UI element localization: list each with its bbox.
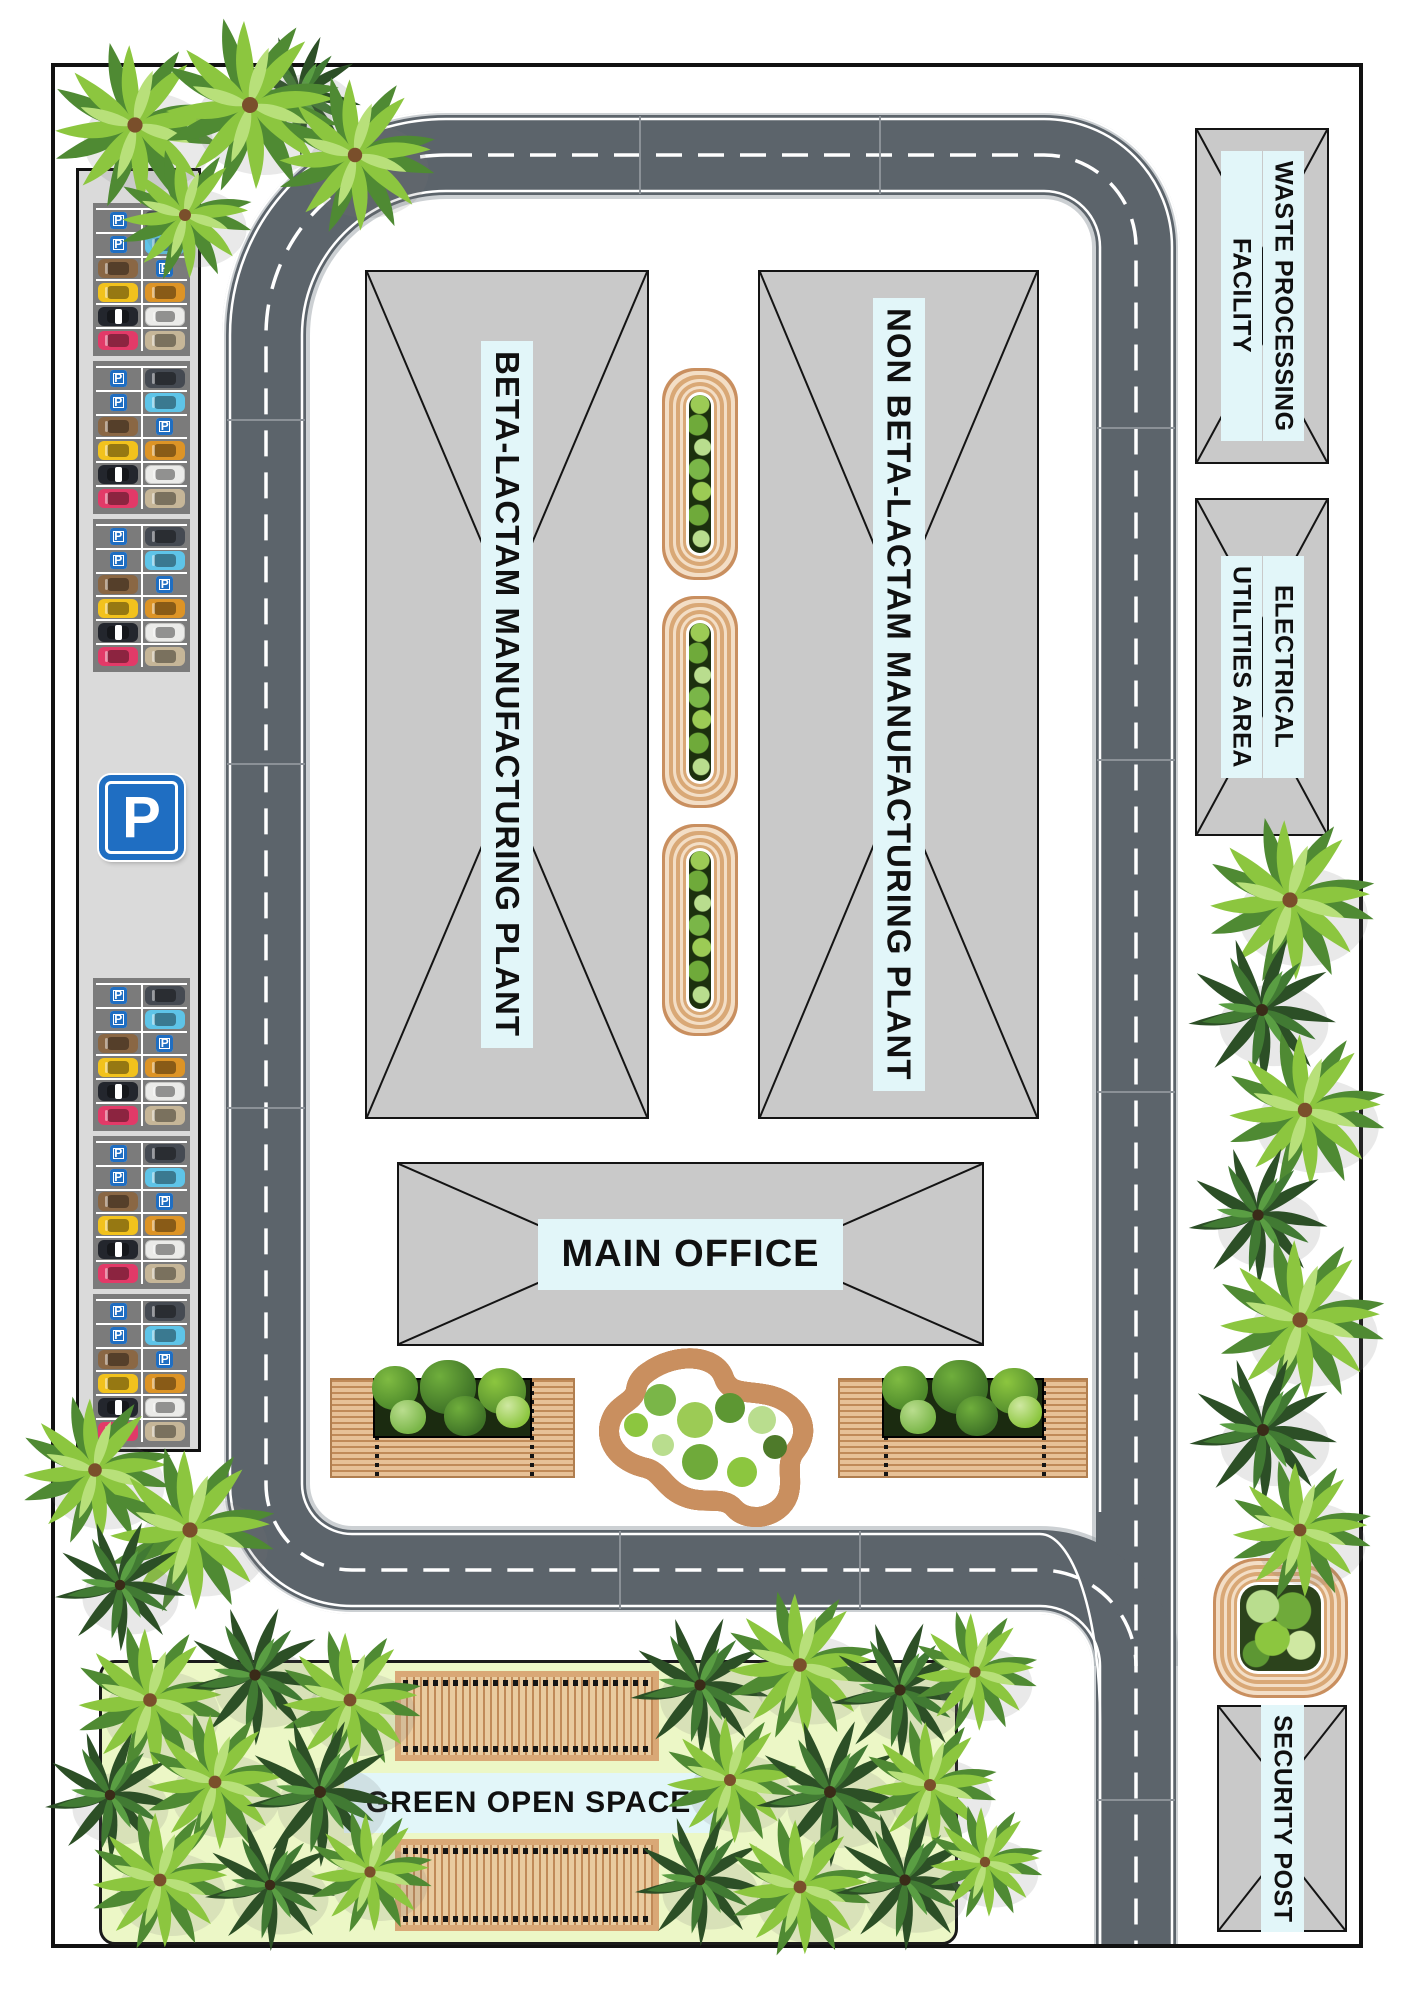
parking-stall [96,1080,143,1102]
parking-block: PPP [93,519,190,672]
parking-stall [143,621,188,643]
car-cyan-icon [145,235,185,254]
parking-stall: P [143,416,188,438]
parking-stall: P [96,1009,143,1031]
parking-stall [143,1262,188,1284]
parking-stall [143,1056,188,1078]
parking-stall [143,550,188,572]
parking-stall: P [96,550,143,572]
capsule-planter [689,623,711,781]
parking-stall [96,1262,143,1284]
car-police-icon [98,1240,138,1259]
car-van-icon [145,1106,185,1125]
parking-stall [143,234,188,256]
car-white-icon [145,307,185,326]
car-orange-icon [145,1216,185,1235]
parking-stall [96,281,143,303]
parking-stall [96,1056,143,1078]
capsule-planter [689,395,711,553]
parking-stall [143,1372,188,1394]
car-white-icon [145,465,185,484]
parking-stall [143,1080,188,1102]
parking-stall: P [96,1325,143,1347]
parking-stall [96,574,143,596]
parking-stall [143,1325,188,1347]
parking-sign-icon: P [110,1011,127,1028]
parking-stall [143,597,188,619]
car-black-icon [145,211,185,230]
parking-strip: PPP PPP PPP P PPP PPP PPP [76,168,201,1452]
car-white-icon [145,1082,185,1101]
car-van-icon [145,647,185,666]
parking-block: PPP [93,978,190,1131]
car-brown-icon [98,1192,138,1211]
building-electrical-utilities: ELECTRICALUTILITIES AREA [1195,498,1329,836]
car-black-icon [145,986,185,1005]
building-label: WASTE PROCESSINGFACILITY [1220,151,1305,442]
parking-stall [143,1214,188,1236]
car-pink-icon [98,647,138,666]
green-space-label: GREEN OPEN SPACE [344,1773,714,1833]
parking-stall [96,258,143,280]
parking-sign-icon: P [156,1193,173,1210]
parking-stall [96,621,143,643]
parking-sign-icon: P [110,552,127,569]
parking-stall: P [96,368,143,390]
car-pink-icon [98,1422,138,1441]
car-police-icon [98,1398,138,1417]
car-brown-icon [98,1034,138,1053]
site-plan: PPP PPP PPP P PPP PPP PPP BETA-LACTAM MA… [0,0,1414,2000]
car-white-icon [145,1240,185,1259]
parking-stall [96,463,143,485]
parking-stall [143,1167,188,1189]
car-brown-icon [98,575,138,594]
car-police-icon [98,1082,138,1101]
parking-stall [143,487,188,509]
parking-sign-icon: P [110,1327,127,1344]
parking-sign-icon: P [110,1145,127,1162]
capsule-planter [689,851,711,1009]
parking-sign-icon: P [110,1303,127,1320]
parking-stall [143,392,188,414]
parking-stall: P [143,258,188,280]
parking-stall [143,1301,188,1323]
car-black-icon [145,1144,185,1163]
deck-planter [330,1378,575,1478]
parking-stall [143,526,188,548]
car-brown-icon [98,417,138,436]
parking-stall [143,1396,188,1418]
building-label: MAIN OFFICE [538,1219,844,1290]
parking-sign-icon: P [110,394,127,411]
building-label: NON BETA-LACTAM MANUFACTURING PLANT [873,298,925,1091]
parking-stall [96,416,143,438]
car-van-icon [145,331,185,350]
car-cyan-icon [145,551,185,570]
building-waste-processing: WASTE PROCESSINGFACILITY [1195,128,1329,464]
parking-stall: P [96,210,143,232]
deck-planter [838,1378,1088,1478]
car-pink-icon [98,1106,138,1125]
car-taxi-icon [98,441,138,460]
car-van-icon [145,1422,185,1441]
car-cyan-icon [145,393,185,412]
car-black-icon [145,369,185,388]
parking-stall [96,1349,143,1371]
parking-stall: P [96,392,143,414]
car-white-icon [145,623,185,642]
parking-block: PPP [93,1294,190,1447]
car-cyan-icon [145,1168,185,1187]
parking-stall [143,1009,188,1031]
parking-stall [96,1238,143,1260]
parking-stall: P [96,1301,143,1323]
parking-sign-icon: P [110,987,127,1004]
parking-block: PPP [93,1136,190,1289]
parking-stall [143,1420,188,1442]
car-brown-icon [98,259,138,278]
parking-stall [96,1104,143,1126]
car-taxi-icon [98,1374,138,1393]
parking-sign-icon: P [156,418,173,435]
car-orange-icon [145,599,185,618]
building-label: SECURITY POST [1261,1705,1304,1932]
parking-sign-icon: P [156,576,173,593]
parking-sign-icon: P [156,1035,173,1052]
car-police-icon [98,307,138,326]
parking-sign-icon: P [110,1169,127,1186]
parking-stall [96,645,143,667]
parking-sign-icon: P [110,370,127,387]
parking-stall: P [96,1143,143,1165]
car-orange-icon [145,441,185,460]
car-van-icon [145,1264,185,1283]
parking-stall [143,645,188,667]
parking-sign-icon: P [99,775,184,860]
parking-stall: P [96,985,143,1007]
parking-stall [143,305,188,327]
parking-stall: P [143,1191,188,1213]
parking-sign-icon: P [156,260,173,277]
parking-stall [143,329,188,351]
building-security-post: SECURITY POST [1217,1705,1347,1932]
parking-block: PPP [93,361,190,514]
parking-stall [96,1191,143,1213]
parking-sign-icon: P [110,528,127,545]
building-label: BETA-LACTAM MANUFACTURING PLANT [481,341,533,1047]
parking-stall [143,210,188,232]
square-planter [1240,1585,1321,1671]
parking-block: PPP [93,203,190,356]
car-pink-icon [98,1264,138,1283]
parking-sign-icon: P [110,212,127,229]
car-taxi-icon [98,283,138,302]
green-open-space: GREEN OPEN SPACE [99,1660,958,1945]
parking-stall [96,1372,143,1394]
parking-stall [96,1420,143,1442]
parking-stall: P [96,1167,143,1189]
parking-stall [143,439,188,461]
car-orange-icon [145,283,185,302]
building-main-office: MAIN OFFICE [397,1162,984,1346]
car-orange-icon [145,1374,185,1393]
parking-stall: P [96,526,143,548]
building-label: ELECTRICALUTILITIES AREA [1220,556,1305,778]
parking-stall [96,439,143,461]
car-cyan-icon [145,1010,185,1029]
parking-stall [143,463,188,485]
parking-stall: P [96,234,143,256]
parking-stall [96,1214,143,1236]
parking-stall [143,1143,188,1165]
car-pink-icon [98,331,138,350]
parking-stall: P [143,1349,188,1371]
parking-stall [143,985,188,1007]
parking-stall [143,368,188,390]
car-black-icon [145,1302,185,1321]
parking-stall [143,281,188,303]
car-police-icon [98,623,138,642]
car-orange-icon [145,1058,185,1077]
car-white-icon [145,1398,185,1417]
car-police-icon [98,465,138,484]
parking-sign-icon: P [156,1351,173,1368]
car-pink-icon [98,489,138,508]
parking-stall [143,1238,188,1260]
building-beta-lactam-plant: BETA-LACTAM MANUFACTURING PLANT [365,270,649,1119]
parking-stall [96,1396,143,1418]
car-taxi-icon [98,1058,138,1077]
parking-stall [96,597,143,619]
car-taxi-icon [98,599,138,618]
car-taxi-icon [98,1216,138,1235]
parking-stall [96,305,143,327]
car-black-icon [145,527,185,546]
parking-stall [143,1104,188,1126]
parking-stall: P [143,574,188,596]
parking-stall [96,329,143,351]
parking-stall: P [143,1033,188,1055]
car-cyan-icon [145,1326,185,1345]
building-non-beta-lactam-plant: NON BETA-LACTAM MANUFACTURING PLANT [758,270,1039,1119]
car-van-icon [145,489,185,508]
parking-sign-icon: P [110,236,127,253]
parking-stall [96,1033,143,1055]
car-brown-icon [98,1350,138,1369]
parking-stall [96,487,143,509]
